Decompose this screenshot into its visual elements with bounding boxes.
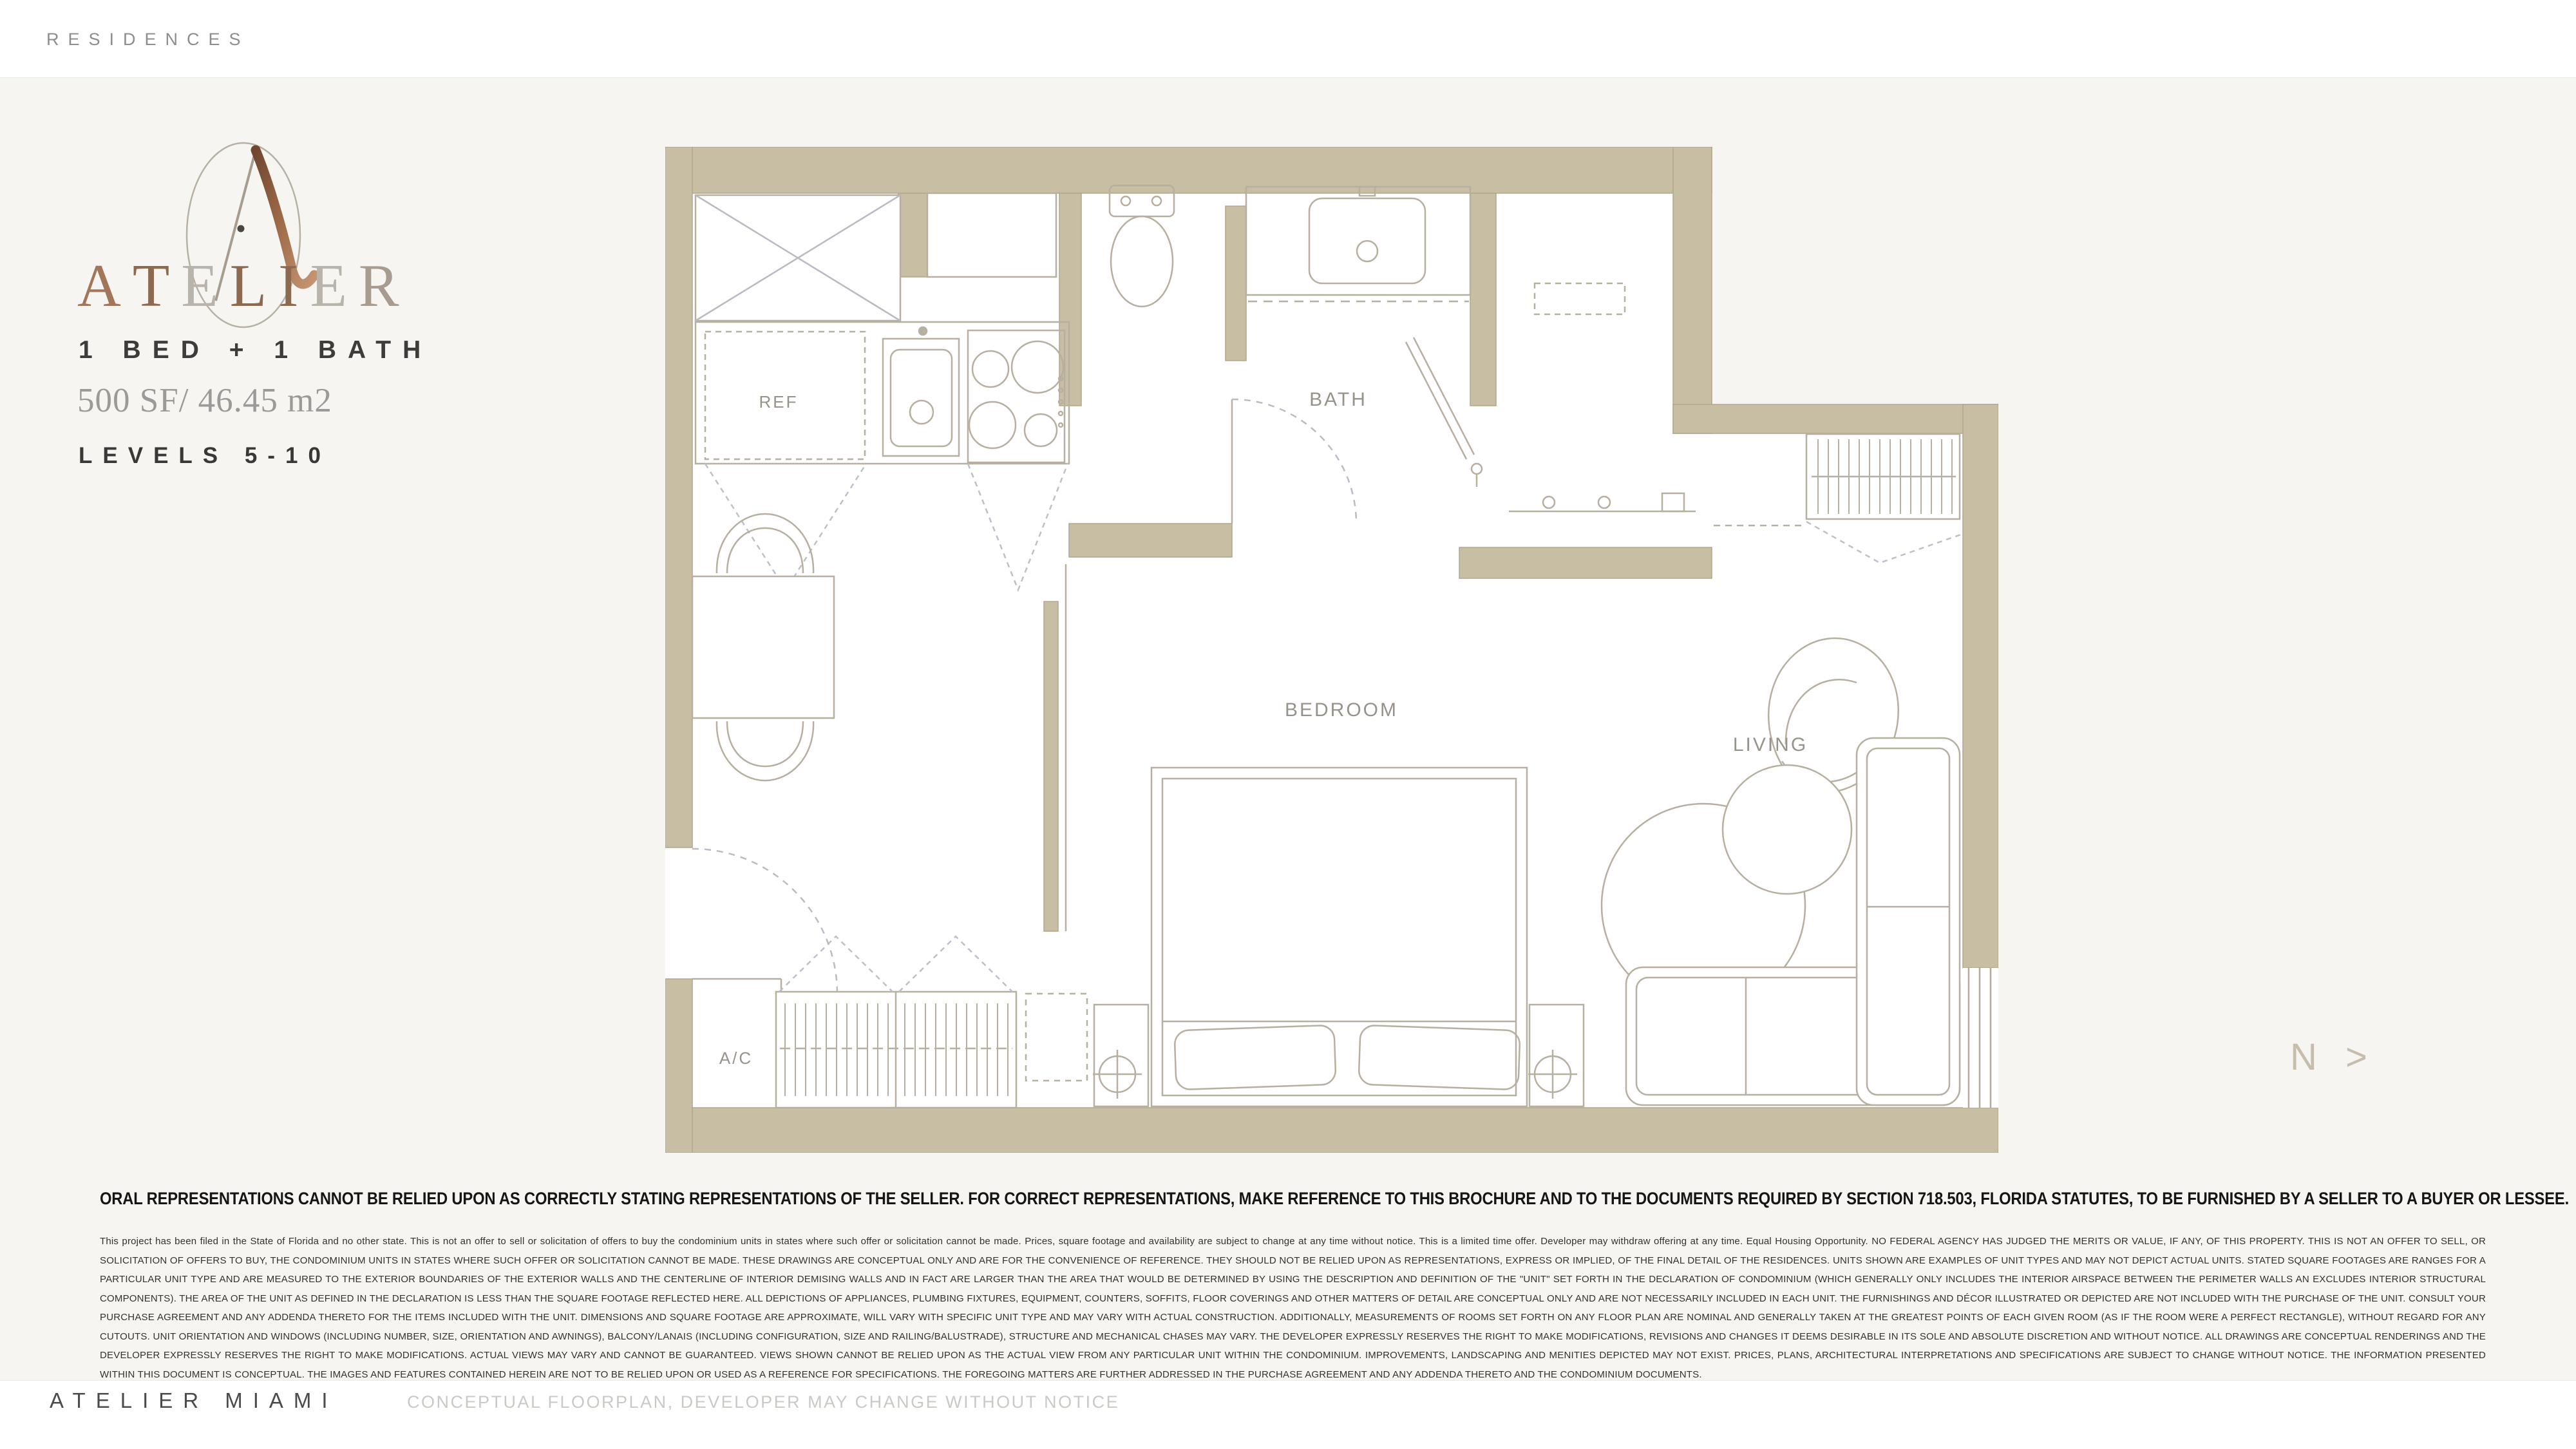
wall-toilet-nook <box>1226 206 1246 361</box>
wall-living-top <box>1673 404 1998 433</box>
label-ac: A/C <box>719 1048 753 1068</box>
wall-pocket-door <box>1044 601 1058 931</box>
unit-levels-label: LEVELS 5-10 <box>79 443 331 469</box>
label-bedroom: BEDROOM <box>1285 699 1398 721</box>
wall-den-bottom <box>1459 547 1712 578</box>
wall-left-lower <box>665 979 692 1153</box>
wall-bath-right <box>1470 193 1496 406</box>
footer-brand: ATELIER MIAMI <box>50 1388 338 1413</box>
floorplan-drawing: REF BATH BEDROOM LIVING A/C <box>665 147 1998 1153</box>
north-arrow-icon: N > <box>2290 1036 2376 1079</box>
brand-wordmark: ATELIER <box>77 251 411 321</box>
brand-letter: L <box>230 252 267 319</box>
nightstand-right <box>1528 1005 1584 1106</box>
brand-letter: T <box>133 252 169 319</box>
bed <box>1151 768 1527 1106</box>
legal-disclaimer: This project has been filed in the State… <box>100 1232 2486 1384</box>
wall-bath-bottom <box>1069 524 1232 557</box>
legal-heading-wrap: ORAL REPRESENTATIONS CANNOT BE RELIED UP… <box>100 1189 2480 1209</box>
brand-letter: E <box>310 252 346 319</box>
legal-intro: This project has been filed in the State… <box>100 1236 1871 1247</box>
residences-label: RESIDENCES <box>46 30 250 50</box>
nightstand-left <box>1093 1005 1148 1106</box>
brand-letter: I <box>278 252 298 319</box>
unit-type-label: 1 BED + 1 BATH <box>79 336 432 365</box>
wall-top <box>665 147 1712 193</box>
balcony-window <box>1963 968 1998 1108</box>
wall-left-upper <box>665 147 692 848</box>
wall-bottom <box>665 1108 1998 1153</box>
unit-area-label: 500 SF/ 46.45 m2 <box>77 381 332 420</box>
legal-heading: ORAL REPRESENTATIONS CANNOT BE RELIED UP… <box>100 1189 2480 1209</box>
brand-letter: R <box>359 252 399 319</box>
label-bath: BATH <box>1309 389 1367 410</box>
brochure-page: RESIDENCES ATELIER 1 BED + 1 BATH 500 SF… <box>0 0 2576 1449</box>
footer-note: CONCEPTUAL FLOORPLAN, DEVELOPER MAY CHAN… <box>407 1392 1119 1412</box>
brand-letter: A <box>77 252 121 319</box>
label-living: LIVING <box>1733 734 1808 755</box>
brand-letter: E <box>181 252 218 319</box>
label-ref: REF <box>759 392 799 412</box>
wall-right <box>1963 404 1998 968</box>
wall-step-vertical <box>1673 147 1712 433</box>
legal-caps: NO FEDERAL AGENCY HAS JUDGED THE MERITS … <box>100 1236 2486 1380</box>
wall-kitchen-notch <box>898 193 927 277</box>
